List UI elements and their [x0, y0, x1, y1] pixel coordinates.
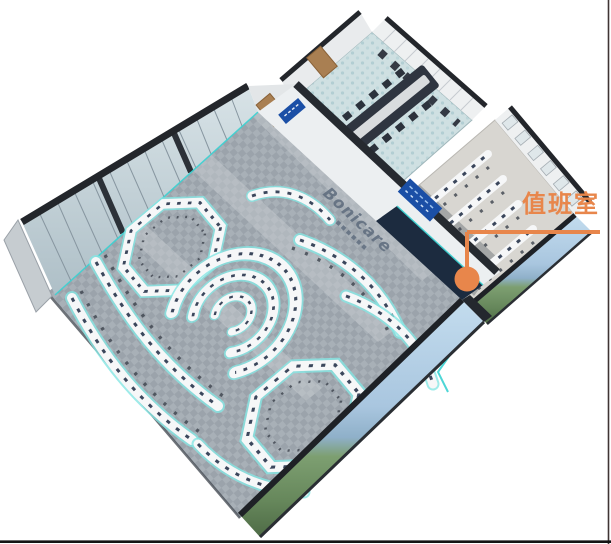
floorplan-render: Bonicare	[0, 0, 611, 544]
annotation-label: 值班室	[522, 190, 600, 218]
document-page: Bonicare	[0, 0, 611, 544]
annotation-dot	[455, 267, 480, 292]
